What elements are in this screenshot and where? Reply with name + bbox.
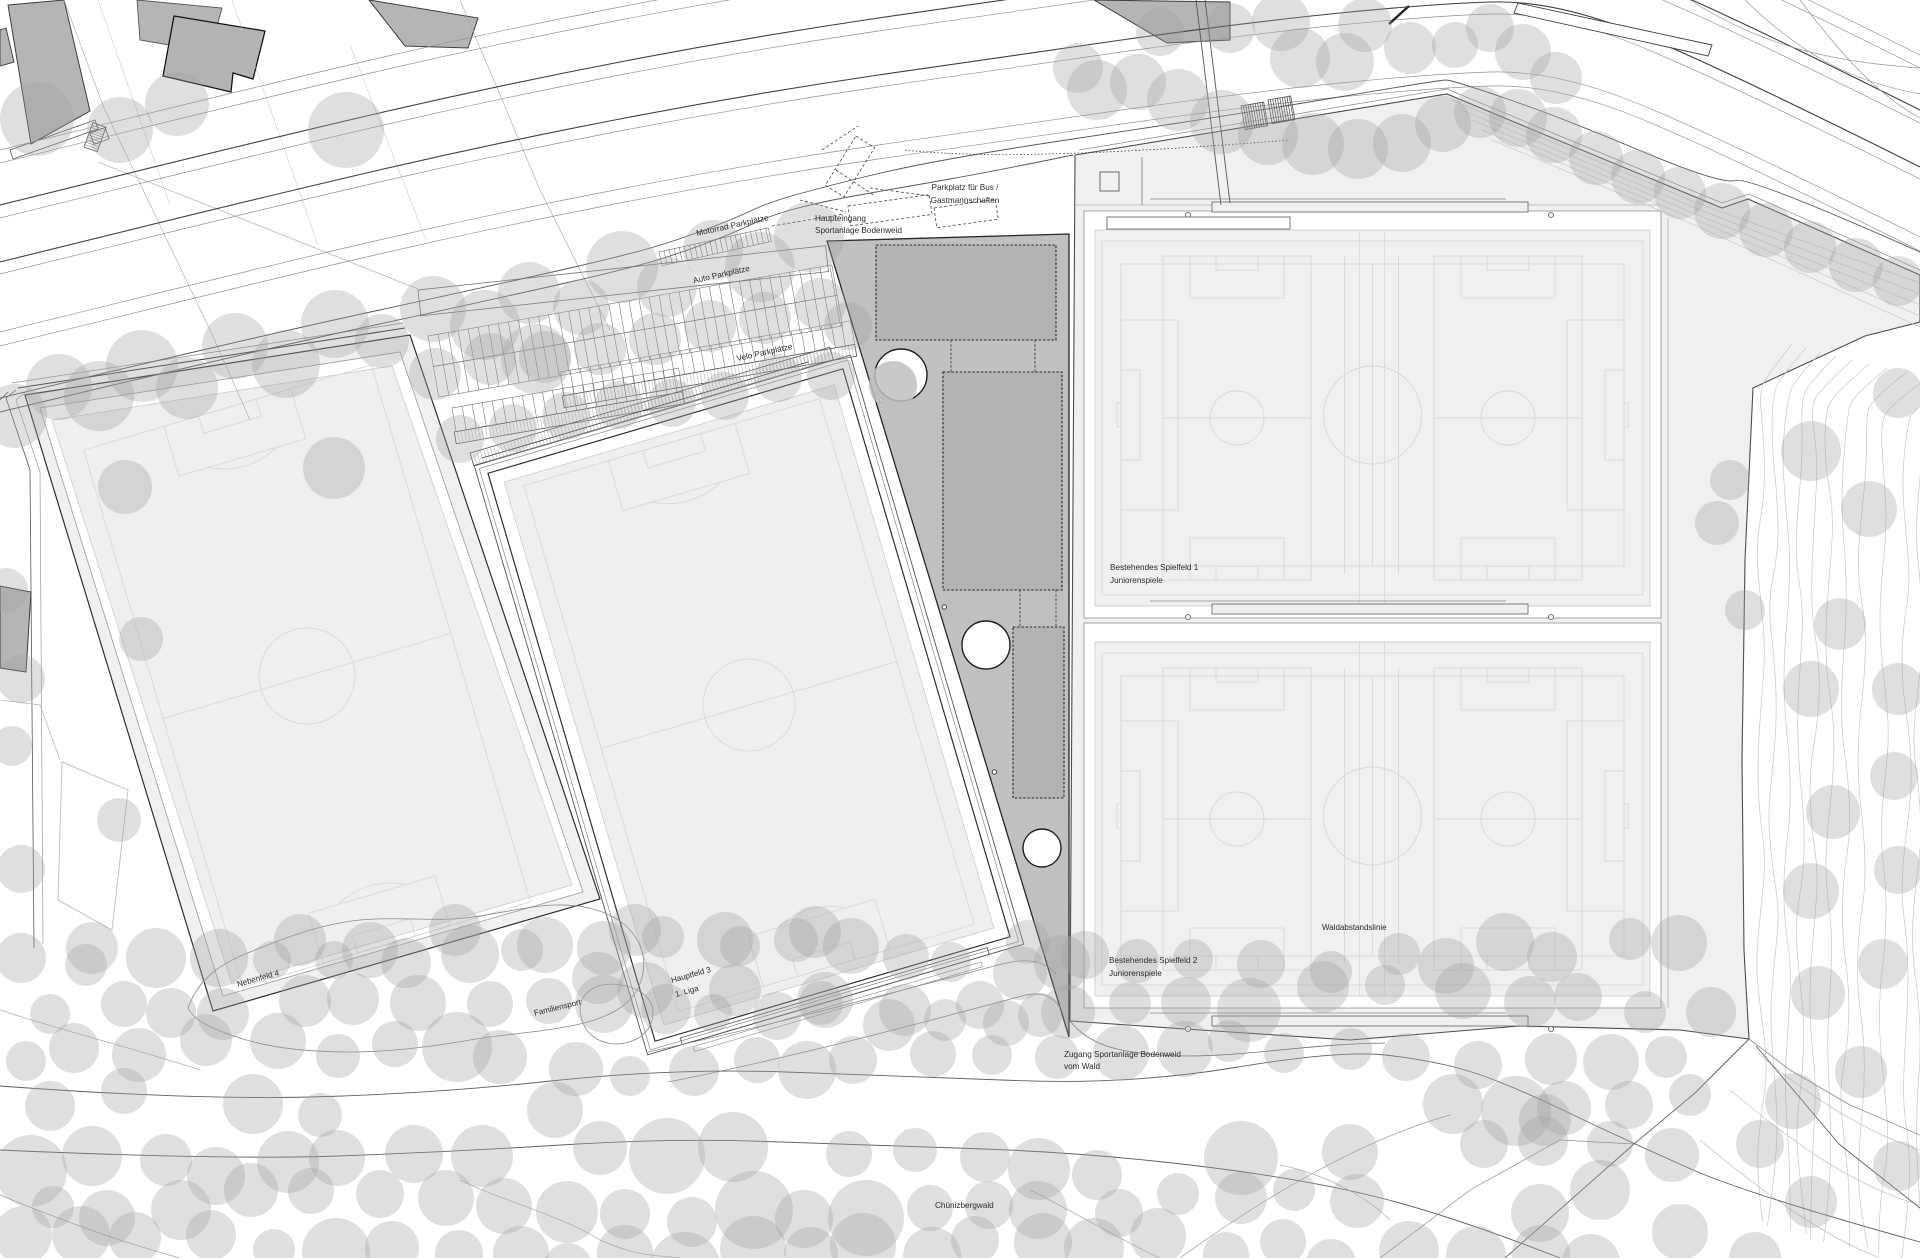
svg-text:Zugang Sportanlage Bodenweid: Zugang Sportanlage Bodenweid: [1064, 1050, 1181, 1059]
svg-text:Waldabstandslinie: Waldabstandslinie: [1322, 923, 1387, 932]
svg-text:Gastmannschaften: Gastmannschaften: [931, 196, 1000, 205]
svg-text:Juniorenspiele: Juniorenspiele: [1110, 576, 1163, 585]
svg-text:Juniorenspiele: Juniorenspiele: [1109, 969, 1162, 978]
svg-text:Chünizbergwald: Chünizbergwald: [935, 1201, 994, 1210]
svg-text:Haupteingang: Haupteingang: [815, 214, 866, 223]
svg-text:Sportanlage Bodenweid: Sportanlage Bodenweid: [815, 226, 902, 235]
svg-text:Parkplatz für Bus /: Parkplatz für Bus /: [932, 183, 1000, 192]
svg-text:Bestehendes Spielfeld 2: Bestehendes Spielfeld 2: [1109, 956, 1198, 965]
svg-text:vom Wald: vom Wald: [1064, 1062, 1101, 1071]
svg-text:Bestehendes Spielfeld 1: Bestehendes Spielfeld 1: [1110, 563, 1199, 572]
